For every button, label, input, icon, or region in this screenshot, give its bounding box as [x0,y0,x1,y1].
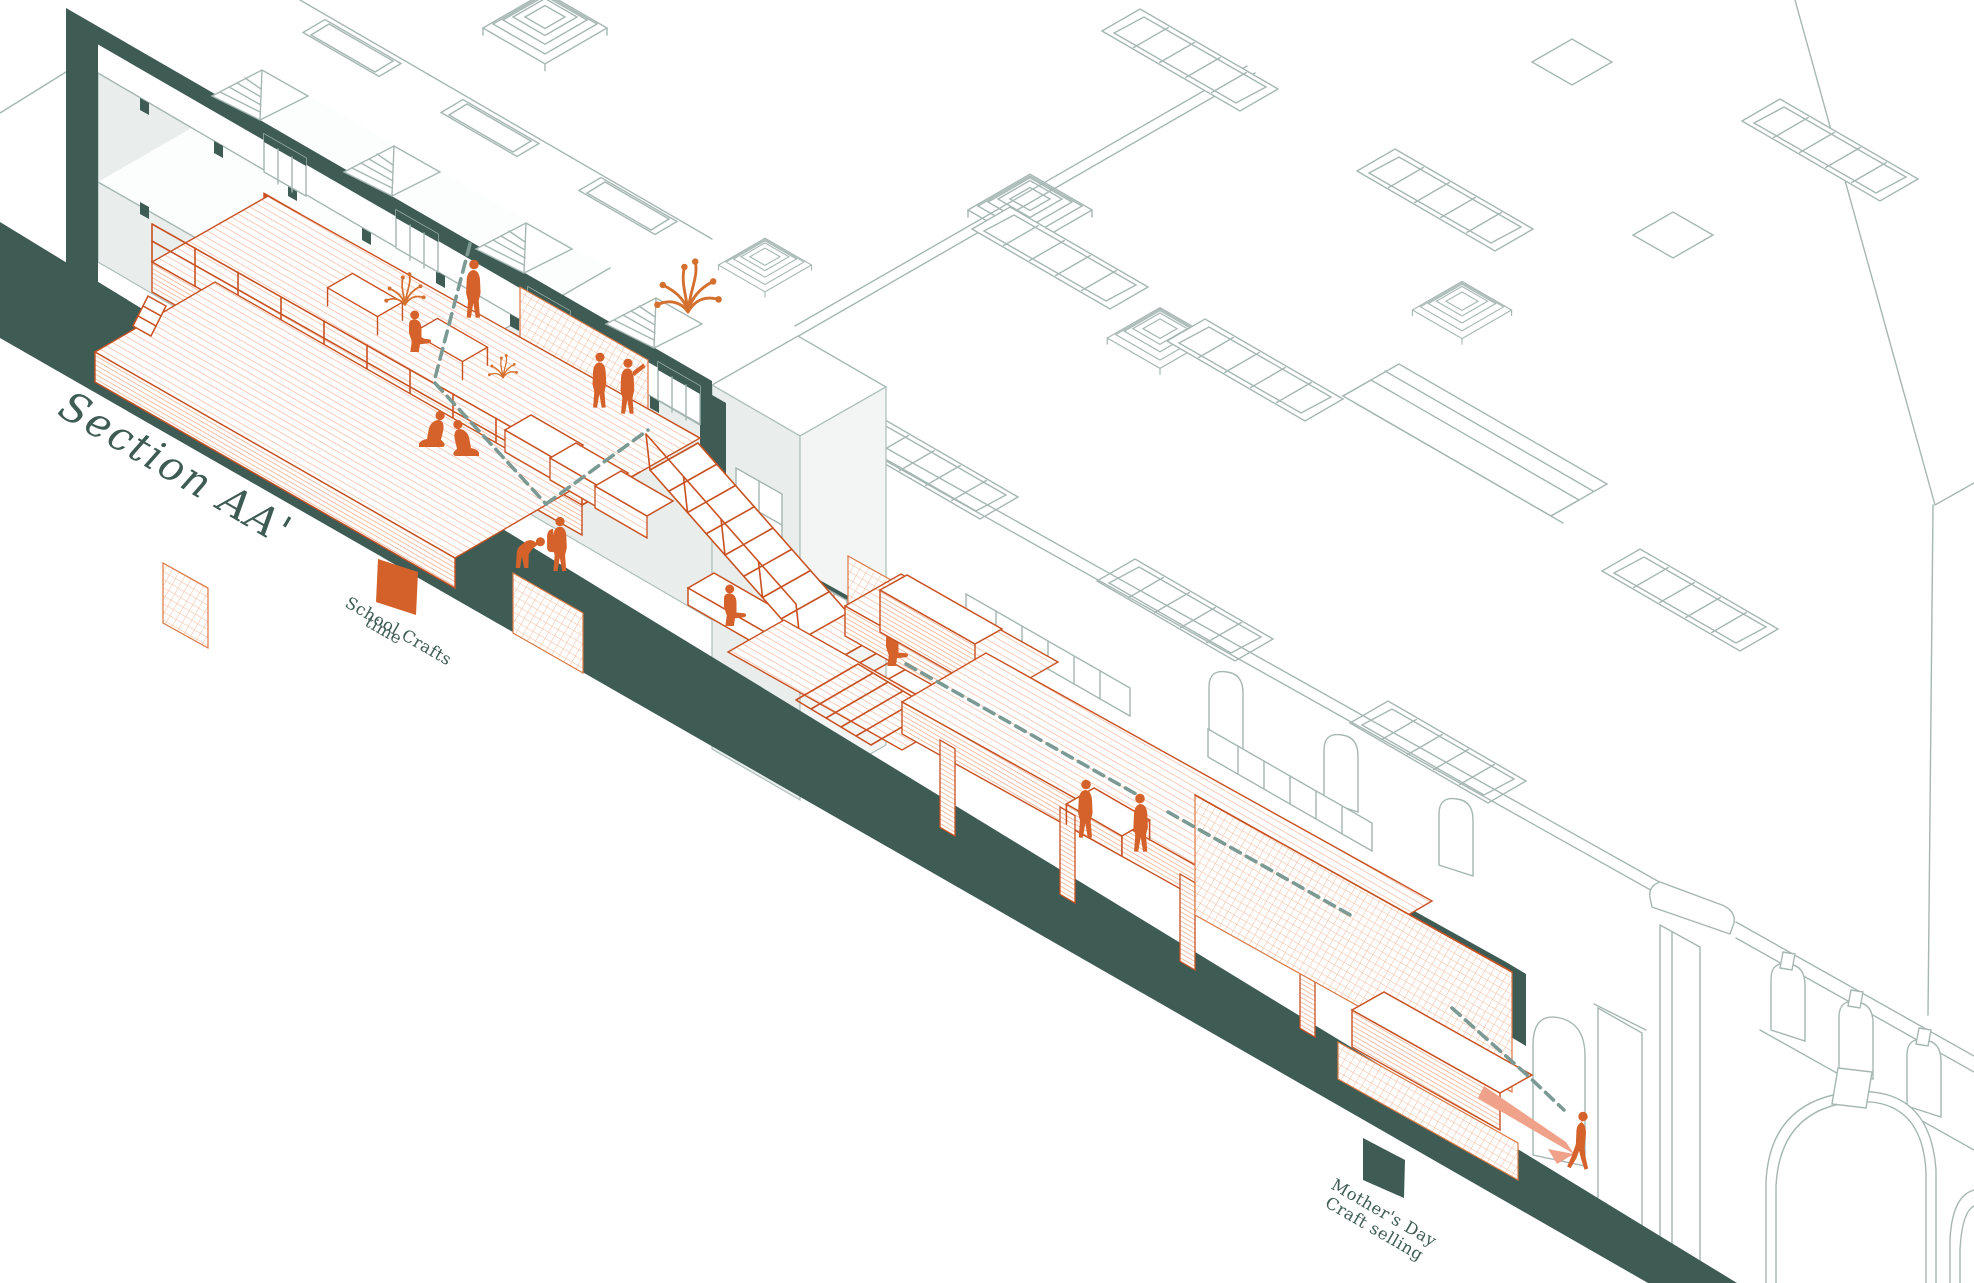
roof-hatch [579,178,677,235]
roof-skylight-box [1602,549,1778,651]
deck-post [1060,807,1075,903]
arcade-window [1839,1002,1873,1079]
stepped-skylight [719,238,812,297]
roof-skylight-box [1742,99,1918,201]
cut-wall-edge [66,10,98,338]
roof-skylight-box [1167,319,1343,421]
section-drawing-page: Section AA' School Crafts time Mother's … [0,0,1974,1283]
stepped-skylight [483,0,607,71]
roof-skylight-box [1350,701,1526,803]
deck-post [940,740,955,836]
stepped-skylight [1412,281,1511,344]
roof-skylight-box [1357,149,1533,251]
arcade-window [1907,1040,1941,1117]
keystone [1780,952,1795,970]
arcade-window [1771,964,1805,1041]
keystone [1848,990,1863,1008]
roof-skylight-box [1097,559,1273,661]
roof-hatch [303,20,401,77]
deck-post [1180,874,1195,970]
keystone [1916,1028,1931,1046]
roof-skylight-box [1102,9,1278,111]
roof-hatch [441,100,539,157]
gabled-skylight [1343,364,1607,523]
legend-mothers-day: Mother's Day Craft selling [1322,1138,1440,1265]
arched-window [1439,799,1473,876]
legend-swatch-mothers-day [1363,1138,1405,1198]
section-axonometric-drawing: Section AA' School Crafts time Mother's … [0,0,1974,1283]
